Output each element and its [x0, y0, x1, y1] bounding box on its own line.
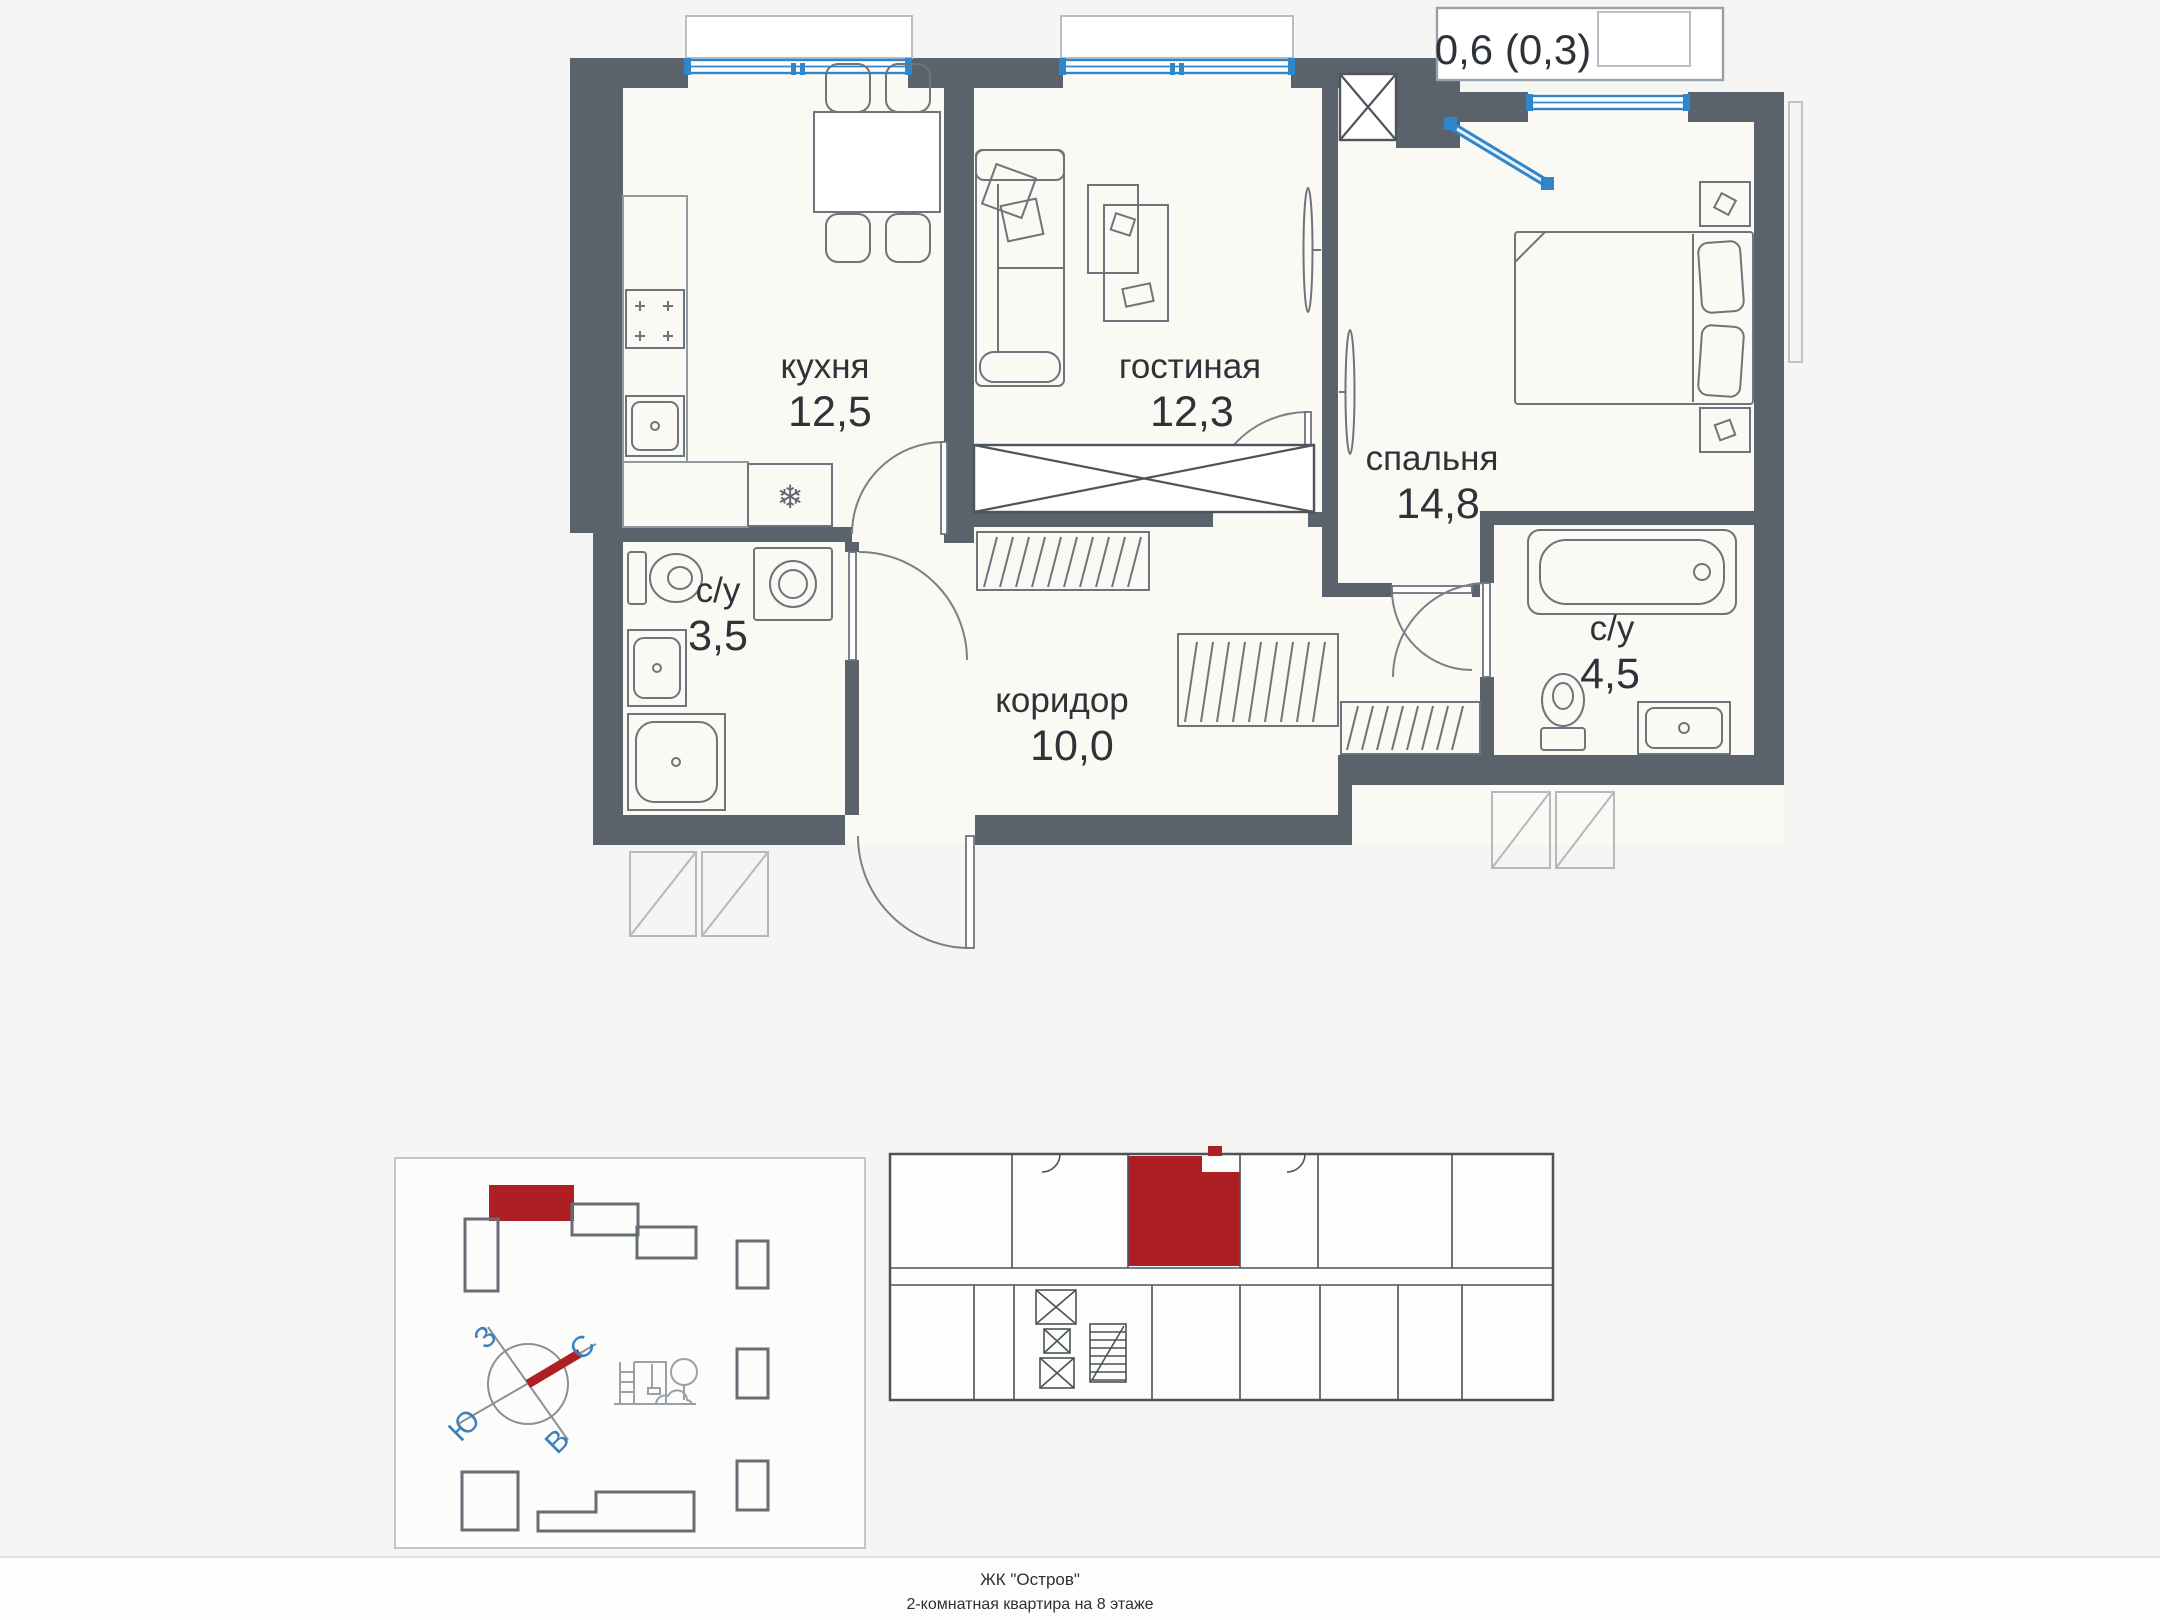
balcony-door-cap — [1541, 177, 1554, 190]
neighbor-closet-diag — [702, 852, 768, 936]
wall-segment — [593, 527, 852, 542]
room-area: 12,5 — [788, 388, 872, 436]
site-building-highlighted — [489, 1185, 574, 1221]
balcony-door-hinge — [1444, 117, 1457, 130]
facade-strip — [1789, 102, 1802, 362]
neighbor-closet-diag — [630, 852, 696, 936]
wall-segment — [1480, 511, 1494, 583]
balcony-area-label: 0,6 (0,3) — [1435, 26, 1591, 73]
apartment-floor-plan: 0,6 (0,3) — [570, 8, 1802, 948]
window-living — [1059, 58, 1295, 75]
window-cap — [1059, 58, 1066, 75]
site-plan: З С Ю В — [395, 1158, 865, 1548]
wall-segment — [593, 815, 845, 845]
window-bedroom — [1526, 94, 1690, 111]
room-area: 10,0 — [1030, 722, 1114, 770]
wall-segment — [1480, 511, 1754, 525]
key-plan-highlighted-unit — [1128, 1156, 1240, 1266]
window-cap — [684, 58, 691, 75]
window-cap — [905, 58, 912, 75]
door-swing-arc — [858, 836, 970, 948]
room-area: 12,3 — [1150, 388, 1234, 436]
wall-segment — [1338, 755, 1352, 845]
room-area: 3,5 — [688, 612, 748, 660]
wall-segment — [944, 88, 974, 543]
wall-segment — [974, 512, 1213, 527]
key-plan — [890, 1146, 1553, 1400]
wall-segment — [908, 58, 1063, 88]
door-leaf — [849, 552, 856, 660]
floor-area-bedroom — [1460, 92, 1784, 845]
window-mullion — [791, 63, 796, 75]
room-name: с/у — [1590, 609, 1635, 648]
room-area: 14,8 — [1396, 480, 1480, 528]
wall-segment — [975, 815, 1352, 845]
balcony-glazing — [1598, 12, 1690, 66]
ventilation-shaft — [1340, 74, 1396, 140]
wall-segment — [1308, 512, 1322, 527]
wall-segment — [845, 542, 859, 552]
room-name: коридор — [995, 681, 1129, 720]
door-leaf — [941, 442, 947, 534]
room-name: кухня — [781, 347, 870, 386]
window-mullion — [800, 63, 805, 75]
wall-segment — [570, 58, 623, 533]
room-label-kitchen: кухня 12,5 — [781, 347, 872, 436]
fridge-snowflake: ❄ — [777, 478, 804, 516]
room-name: спальня — [1366, 439, 1499, 478]
wall-segment — [1322, 88, 1338, 597]
window-sill-box — [1061, 16, 1293, 58]
window-cap — [1288, 58, 1295, 75]
wall-segment — [1338, 755, 1784, 785]
wardrobe-living — [974, 445, 1314, 512]
room-label-bath-big: с/у 4,5 — [1580, 609, 1640, 698]
wall-segment — [845, 660, 859, 815]
door-leaf — [1483, 583, 1490, 677]
page: 0,6 (0,3) — [0, 0, 2160, 1620]
window-mullion — [1179, 63, 1184, 75]
room-name: гостиная — [1119, 347, 1261, 386]
room-name: с/у — [696, 571, 741, 610]
wall-segment — [1754, 92, 1784, 785]
footer-project-name: ЖК "Остров" — [980, 1570, 1080, 1590]
wall-segment — [1472, 583, 1480, 597]
window-cap — [1526, 94, 1533, 111]
door-entry — [858, 836, 974, 948]
wall-segment — [1480, 677, 1494, 755]
room-area: 4,5 — [1580, 650, 1640, 698]
wall-segment — [1448, 92, 1528, 122]
door-leaf — [966, 836, 974, 948]
room-label-bath-small: с/у 3,5 — [688, 571, 748, 660]
window-kitchen — [684, 58, 912, 75]
footer-apartment-info: 2-комнатная квартира на 8 этаже — [906, 1596, 1153, 1614]
window-sill-box — [686, 16, 912, 58]
site-plan-border — [395, 1158, 865, 1548]
key-plan-highlight-tab — [1208, 1146, 1222, 1156]
wall-segment — [1338, 583, 1392, 597]
plan-drawing: 0,6 (0,3) — [0, 0, 2160, 1620]
window-cap — [1683, 94, 1690, 111]
wall-segment — [593, 533, 623, 845]
dining-table — [814, 112, 940, 212]
window-mullion — [1170, 63, 1175, 75]
